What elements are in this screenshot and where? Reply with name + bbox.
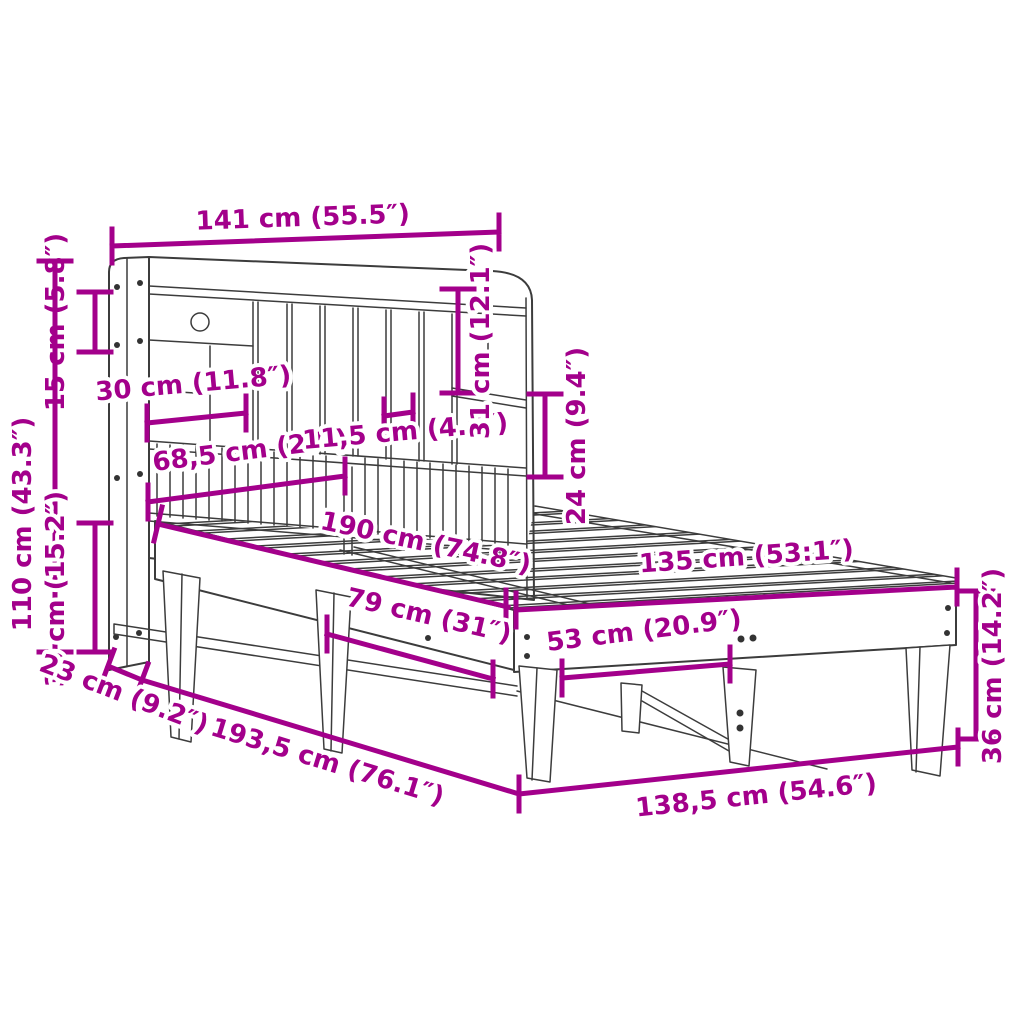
dim-frame-height: 36 cm (14.2″) [959, 568, 1008, 764]
dim-rail-section-height: 24 cm (9.4″) [529, 347, 592, 525]
leg-front-corner [519, 666, 557, 782]
leg-small-center [621, 683, 642, 733]
dim-headboard-height-label: 110 cm (43.3″) [8, 417, 38, 631]
dim-compartment-height-label: 31 cm (12.1″) [466, 243, 496, 439]
bed-drawing [109, 257, 958, 782]
dim-frame-height-label: 36 cm (14.2″) [978, 568, 1008, 764]
product-dimension-image: 141 cm (55.5″) 15 cm (5.8″) 110 cm (43.3… [0, 0, 1024, 1024]
dim-headboard-width-label: 141 cm (55.5″) [195, 199, 410, 236]
diagram-svg: 141 cm (55.5″) 15 cm (5.8″) 110 cm (43.3… [0, 0, 1024, 1024]
leg-foot-right [906, 645, 950, 776]
dim-rail-section-height-label: 24 cm (9.4″) [562, 347, 592, 525]
dim-headboard-width: 141 cm (55.5″) [112, 199, 499, 263]
headboard-side-panel [109, 257, 149, 670]
